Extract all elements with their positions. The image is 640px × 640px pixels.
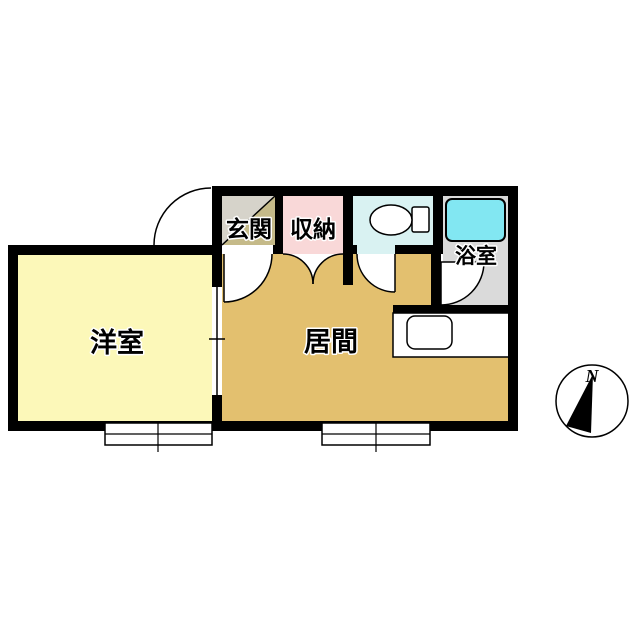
wall-western-top [8, 245, 222, 255]
wall-bottom [8, 421, 518, 431]
living-room-window [322, 423, 430, 452]
toilet-bowl [370, 205, 412, 235]
kitchen-sink [407, 316, 452, 349]
living-room-label: 居間 [304, 327, 358, 357]
floor-plan-canvas: 玄関 収納 浴室 洋室 居間 N [0, 0, 640, 640]
wall-storage-toilet [343, 196, 353, 285]
toilet-icon [370, 205, 429, 235]
western-room-window [105, 423, 212, 452]
wall-partition-upper [212, 245, 222, 287]
front-entry-door-arc [154, 188, 211, 245]
wall-left [8, 245, 18, 431]
compass: N [556, 365, 628, 437]
toilet-tank [412, 207, 429, 232]
wall-top [212, 186, 518, 196]
western-room-label: 洋室 [90, 327, 144, 358]
wall-partition-lower [212, 395, 222, 421]
compass-north-letter: N [585, 366, 600, 386]
storage-label: 収納 [290, 216, 336, 242]
wall-kitchen-top [393, 305, 518, 313]
bathtub [446, 199, 505, 241]
wall-living-bath [431, 245, 441, 313]
wall-entrance-storage [275, 196, 283, 254]
bathroom-label: 浴室 [455, 244, 497, 268]
entrance-label: 玄関 [226, 216, 272, 242]
floor-plan-drawing: 玄関 収納 浴室 洋室 居間 N [0, 0, 640, 640]
wall-entrance-left [212, 186, 222, 254]
